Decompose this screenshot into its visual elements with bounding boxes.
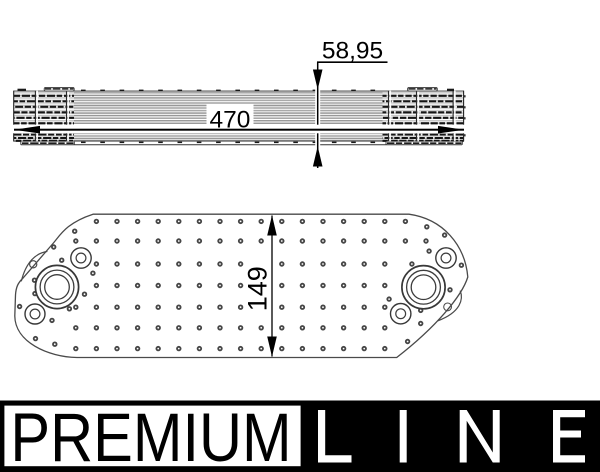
- svg-text:149: 149: [243, 266, 273, 311]
- svg-text:470: 470: [210, 107, 251, 134]
- svg-text:58,95: 58,95: [322, 37, 383, 64]
- svg-text:PREMIUM: PREMIUM: [10, 399, 291, 472]
